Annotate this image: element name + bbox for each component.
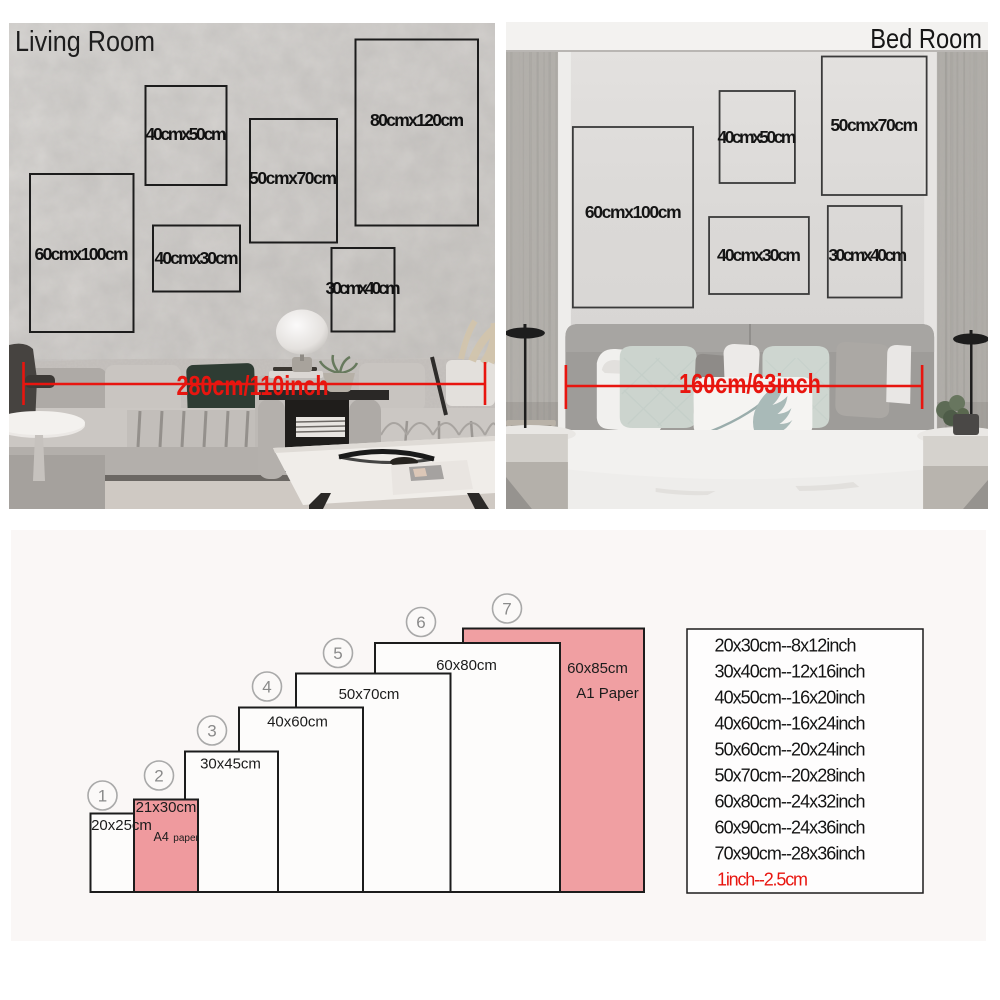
svg-text:2: 2 bbox=[154, 767, 163, 786]
svg-text:40cmx50cm: 40cmx50cm bbox=[718, 127, 797, 147]
svg-text:60x80cm--24x32inch: 60x80cm--24x32inch bbox=[715, 791, 866, 811]
svg-text:A4 paper: A4 paper bbox=[154, 830, 200, 844]
svg-text:40x50cm--16x20inch: 40x50cm--16x20inch bbox=[715, 687, 866, 707]
svg-text:40cmx50cm: 40cmx50cm bbox=[146, 124, 227, 144]
svg-text:50x70cm--20x28inch: 50x70cm--20x28inch bbox=[715, 765, 866, 785]
svg-text:50cmx70cm: 50cmx70cm bbox=[830, 115, 918, 135]
svg-text:7: 7 bbox=[502, 600, 511, 619]
svg-text:50x70cm: 50x70cm bbox=[339, 686, 400, 703]
svg-text:A1 Paper: A1 Paper bbox=[576, 685, 639, 702]
svg-text:1inch--2.5cm: 1inch--2.5cm bbox=[717, 869, 808, 889]
svg-text:60cmx100cm: 60cmx100cm bbox=[35, 244, 129, 264]
svg-text:60x90cm--24x36inch: 60x90cm--24x36inch bbox=[715, 817, 866, 837]
svg-text:280cm/110inch: 280cm/110inch bbox=[177, 370, 329, 401]
svg-text:160cm/63inch: 160cm/63inch bbox=[679, 368, 821, 399]
svg-text:20x30cm--8x12inch: 20x30cm--8x12inch bbox=[715, 635, 857, 655]
svg-text:40cmx30cm: 40cmx30cm bbox=[717, 245, 801, 265]
svg-text:30cmx40cm: 30cmx40cm bbox=[326, 278, 401, 298]
svg-text:5: 5 bbox=[333, 644, 342, 663]
svg-text:3: 3 bbox=[207, 722, 216, 741]
svg-text:60x80cm: 60x80cm bbox=[436, 657, 497, 674]
svg-text:70x90cm--28x36inch: 70x90cm--28x36inch bbox=[715, 843, 866, 863]
svg-text:50cmx70cm: 50cmx70cm bbox=[249, 168, 337, 188]
svg-text:20x25cm: 20x25cm bbox=[91, 817, 152, 834]
svg-text:4: 4 bbox=[262, 678, 271, 697]
svg-text:21x30cm: 21x30cm bbox=[136, 799, 197, 816]
svg-text:1: 1 bbox=[98, 787, 107, 806]
svg-text:6: 6 bbox=[416, 613, 425, 632]
svg-text:80cmx120cm: 80cmx120cm bbox=[370, 110, 464, 130]
svg-text:30x45cm: 30x45cm bbox=[200, 756, 261, 773]
svg-text:30cmx40cm: 30cmx40cm bbox=[828, 245, 907, 265]
svg-text:40x60cm--16x24inch: 40x60cm--16x24inch bbox=[715, 713, 866, 733]
svg-text:40x60cm: 40x60cm bbox=[267, 714, 328, 731]
svg-text:50x60cm--20x24inch: 50x60cm--20x24inch bbox=[715, 739, 866, 759]
svg-text:Living Room: Living Room bbox=[15, 26, 155, 58]
svg-text:30x40cm--12x16inch: 30x40cm--12x16inch bbox=[715, 661, 866, 681]
svg-text:40cmx30cm: 40cmx30cm bbox=[155, 248, 239, 268]
svg-text:Bed Room: Bed Room bbox=[870, 23, 982, 54]
svg-text:60cmx100cm: 60cmx100cm bbox=[585, 202, 682, 222]
svg-text:60x85cm: 60x85cm bbox=[567, 660, 628, 677]
